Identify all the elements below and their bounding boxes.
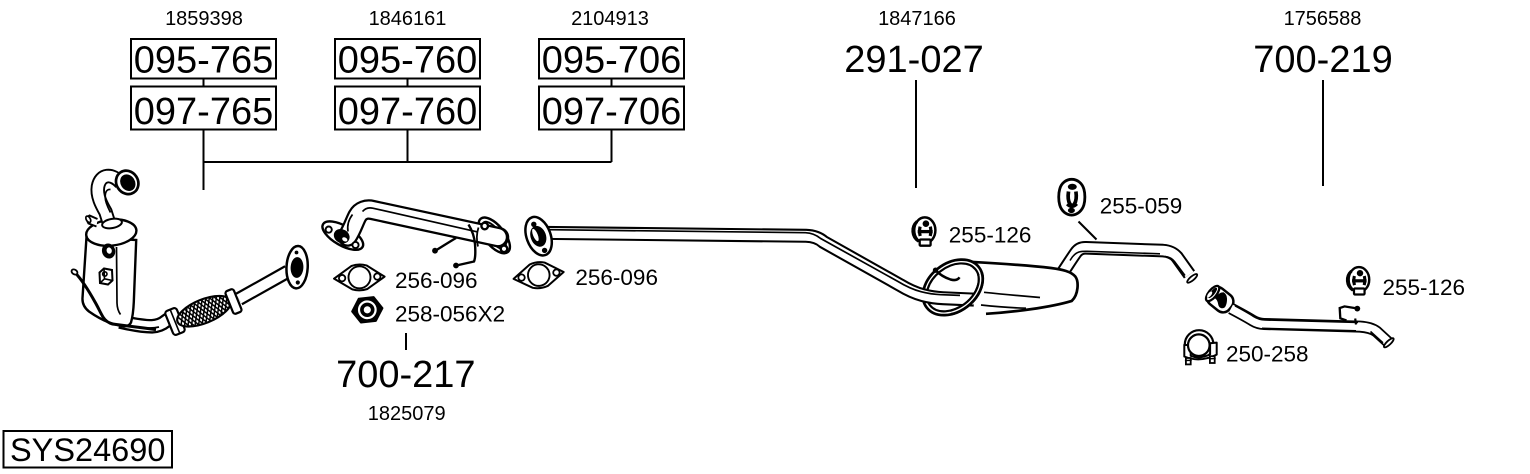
svg-text:097-760: 097-760	[338, 91, 477, 133]
svg-text:700-217: 700-217	[336, 354, 475, 396]
svg-text:097-706: 097-706	[542, 91, 681, 133]
svg-text:095-765: 095-765	[134, 40, 273, 82]
svg-text:255-126: 255-126	[1383, 275, 1466, 300]
svg-text:2104913: 2104913	[571, 8, 649, 30]
svg-text:1847166: 1847166	[878, 8, 956, 30]
svg-text:1859398: 1859398	[165, 8, 243, 30]
svg-text:095-706: 095-706	[542, 40, 681, 82]
svg-text:1825079: 1825079	[368, 403, 446, 425]
svg-text:097-765: 097-765	[134, 91, 273, 133]
svg-text:255-059: 255-059	[1100, 194, 1183, 219]
svg-text:1846161: 1846161	[369, 8, 447, 30]
svg-text:256-096: 256-096	[575, 265, 658, 290]
svg-text:250-258: 250-258	[1226, 342, 1309, 367]
svg-text:700-219: 700-219	[1253, 39, 1392, 81]
svg-text:256-096: 256-096	[395, 268, 478, 293]
svg-text:255-126: 255-126	[949, 223, 1032, 248]
svg-text:095-760: 095-760	[338, 40, 477, 82]
svg-text:258-056X2: 258-056X2	[395, 302, 505, 327]
svg-text:291-027: 291-027	[844, 39, 983, 81]
svg-text:SYS24690: SYS24690	[10, 432, 165, 468]
svg-text:1756588: 1756588	[1284, 8, 1362, 30]
